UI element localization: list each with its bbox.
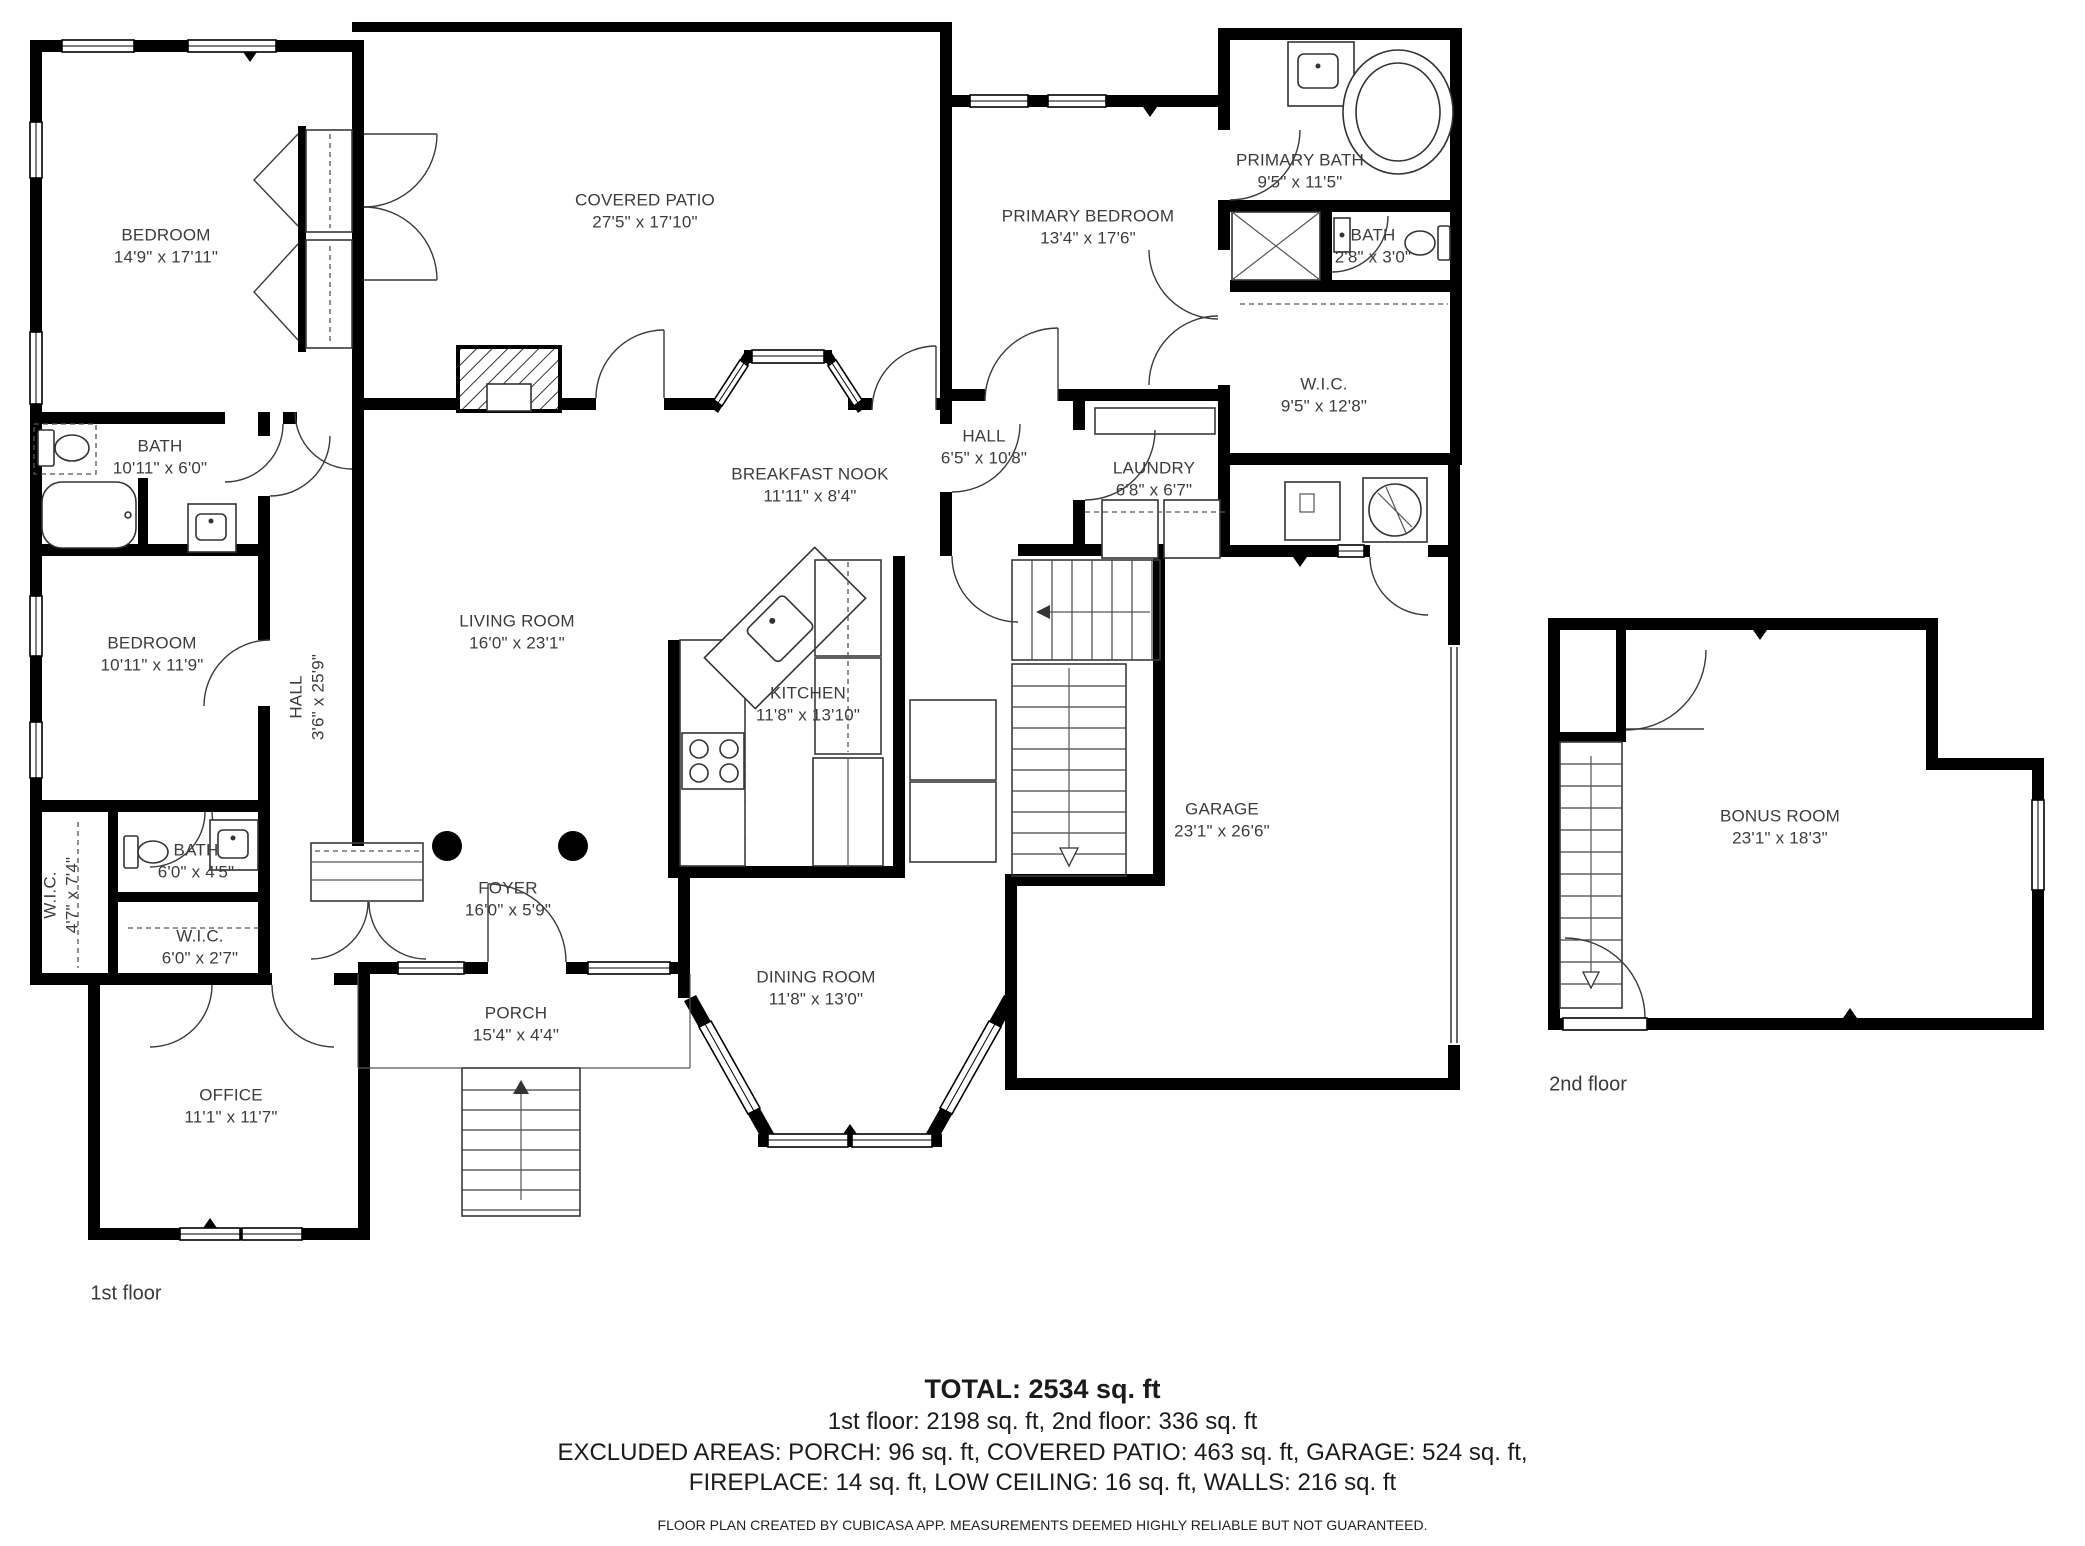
first-floor-label: 1st floor [90,1283,161,1306]
door-arc [1149,250,1218,319]
room-label-covered-patio: COVERED PATIO27'5" x 17'10" [575,190,715,235]
room-label-hall-vertical: HALL3'6" x 25'9" [286,654,331,740]
room-label-wic-left: W.I.C.4'7" x 7'4" [40,857,85,934]
washer-icon [1102,500,1158,558]
bay-window [768,1134,848,1147]
stairs-porch-icon [462,1068,580,1216]
window [62,40,134,52]
window [30,122,42,178]
bay-window [852,1134,932,1147]
room-label-wic-primary: W.I.C.9'5" x 12'8" [1281,374,1367,419]
garage-door [1451,647,1457,1043]
shower-icon [1232,212,1320,280]
door-arc [985,328,1058,401]
room-label-bath-left: BATH10'11" x 6'0" [113,436,208,481]
furnace-icon [1285,482,1340,540]
column-icon [432,831,462,861]
room-label-bonus-room: BONUS ROOM23'1" x 18'3" [1720,806,1840,851]
room-label-kitchen: KITCHEN11'8" x 13'10" [756,683,860,728]
stove-icon [682,733,744,789]
room-label-breakfast-nook: BREAKFAST NOOK11'11" x 8'4" [731,464,888,509]
summary-excluded-2: FIREPLACE: 14 sq. ft, LOW CEILING: 16 sq… [0,1469,2085,1497]
window [30,332,42,404]
room-label-laundry: LAUNDRY6'8" x 6'7" [1113,458,1195,503]
door-arc [1370,557,1428,615]
door-arc [204,640,270,706]
bay-window [940,1021,1001,1114]
room-label-wic-small: W.I.C.6'0" x 2'7" [162,926,239,971]
room-label-primary-bath: PRIMARY BATH9'5" x 11'5" [1236,150,1364,195]
window [30,722,42,778]
fireplace-icon [458,347,560,411]
room-label-dining-room: DINING ROOM11'8" x 13'0" [756,967,875,1012]
room-label-bedroom-tl: BEDROOM14'9" x 17'11" [114,225,218,270]
column-icon [558,831,588,861]
door-arc [364,207,437,280]
room-label-bath-small: BATH6'0" x 4'5" [158,840,235,885]
room-label-bedroom-left: BEDROOM10'11" x 11'9" [101,633,204,678]
sink-icon [188,504,236,552]
floor-plan-page: BEDROOM14'9" x 17'11" COVERED PATIO27'5"… [0,0,2085,1546]
door-arc [272,985,334,1047]
stairs-main-icon [1012,560,1160,876]
summary-floors: 1st floor: 2198 sq. ft, 2nd floor: 336 s… [0,1408,2085,1436]
room-label-office: OFFICE11'1" x 11'7" [184,1085,277,1130]
bay-window [752,350,824,363]
door-arc [872,346,936,410]
window [588,962,670,974]
room-label-primary-bedroom: PRIMARY BEDROOM13'4" x 17'6" [1002,206,1174,251]
window [242,1228,302,1240]
window [398,962,464,974]
bay-window [714,360,748,406]
window [1048,95,1106,107]
door-arc [1149,316,1218,385]
room-label-living-room: LIVING ROOM16'0" x 23'1" [459,611,575,656]
second-floor-label: 2nd floor [1549,1074,1627,1097]
room-label-porch: PORCH15'4" x 4'4" [473,1003,559,1048]
window [30,596,42,656]
door-arc [295,412,352,469]
room-label-hall-center: HALL6'5" x 10'8" [941,426,1027,471]
door-arc [364,134,437,207]
door-arc [1626,650,1706,730]
window [188,40,276,52]
room-label-foyer: FOYER16'0" x 5'9" [465,878,551,923]
room-label-garage: GARAGE23'1" x 26'6" [1174,799,1270,844]
storage-closet [910,700,996,862]
window [970,95,1028,107]
door-arc [369,902,426,959]
toilet-icon [34,424,96,474]
door-arc [150,985,212,1047]
bay-window [828,360,862,406]
bench-icon [311,843,423,901]
door-arc [952,556,1018,622]
stairs-bonus-icon [1560,742,1622,1008]
window [1338,545,1364,557]
bathtub-icon [42,482,136,548]
dryer-icon [1164,500,1220,558]
summary-total: TOTAL: 2534 sq. ft [0,1374,2085,1405]
water-heater-icon [1363,478,1427,542]
doors [150,130,1706,1047]
room-label-bath-tr: BATH2'8" x 3'0" [1335,225,1412,270]
door-arc [596,330,664,398]
bay-window [699,1021,760,1114]
door-arc [311,902,368,959]
toilet-icon [1405,226,1450,260]
disclaimer-text: FLOOR PLAN CREATED BY CUBICASA APP. MEAS… [0,1517,2085,1533]
fridge-icon [813,758,883,866]
summary-excluded-1: EXCLUDED AREAS: PORCH: 96 sq. ft, COVERE… [0,1439,2085,1467]
door-arc [225,424,283,482]
window [2032,800,2044,890]
window [180,1228,240,1240]
